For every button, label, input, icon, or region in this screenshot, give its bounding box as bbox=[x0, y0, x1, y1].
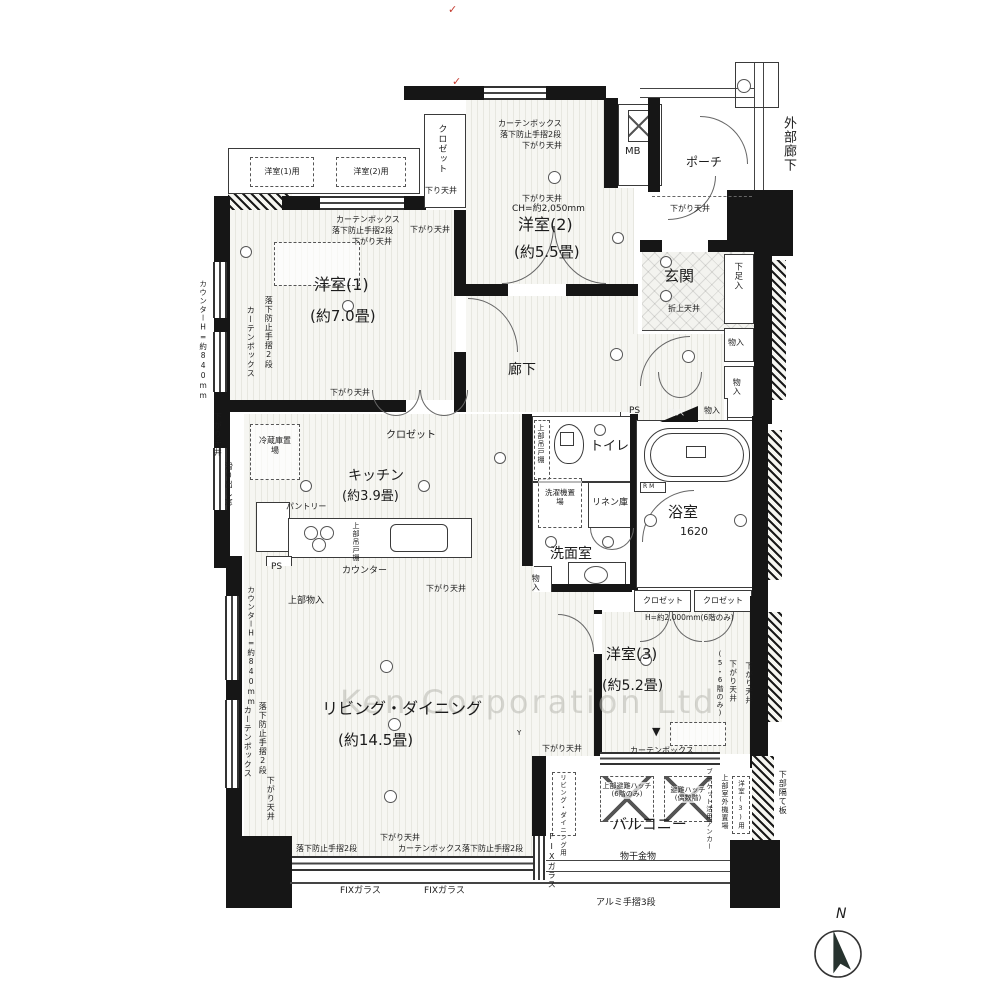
wall bbox=[454, 210, 466, 296]
storage-label: 物入 bbox=[531, 574, 540, 592]
washer-space-label: 洗濯機置場 bbox=[542, 488, 578, 506]
storage-label: 物入 bbox=[704, 406, 720, 415]
closet-top-label: クロゼット bbox=[436, 124, 446, 174]
outdoor-unit-note: 上部室外機置場 bbox=[721, 774, 729, 830]
door-opening bbox=[594, 614, 602, 654]
ceiling-note: 下がり天井 bbox=[744, 662, 753, 705]
ceiling-note: 下がり天井 bbox=[522, 194, 562, 203]
symbol-box-label: Y bbox=[517, 729, 521, 737]
wall-hatched bbox=[772, 260, 786, 400]
fix-glass-label: FIXガラス bbox=[340, 886, 381, 896]
wall bbox=[404, 86, 484, 100]
kitchen-label: キッチン bbox=[348, 468, 404, 484]
anchor-note: ブラケット活用アンカー bbox=[704, 768, 711, 851]
wall bbox=[226, 836, 292, 908]
curtain-box-note: カーテンボックス bbox=[336, 215, 400, 224]
wall bbox=[552, 584, 632, 592]
light-symbol bbox=[548, 171, 561, 184]
light-symbol bbox=[644, 514, 657, 527]
wall-hatched bbox=[768, 430, 782, 580]
toilet-tank bbox=[560, 432, 574, 446]
curtain-box-note: カーテンボックス bbox=[630, 746, 694, 755]
ceiling-note: 下がり天井 bbox=[670, 204, 710, 213]
window bbox=[213, 262, 227, 318]
ceiling-note: 下り天井 bbox=[425, 186, 457, 195]
rail-note: アルミ手摺3段 bbox=[596, 898, 656, 908]
light-symbol bbox=[384, 790, 397, 803]
wall bbox=[522, 414, 532, 590]
light-symbol bbox=[660, 290, 672, 302]
wall bbox=[546, 86, 606, 100]
linen-storage-label: リネン庫 bbox=[592, 498, 628, 508]
hatch-upper-label: 上部避難ハッチ(6階のみ) bbox=[602, 782, 652, 799]
light-symbol bbox=[610, 348, 623, 361]
ceiling-note: 下がり天井 bbox=[542, 744, 582, 753]
height-note: H=約2,000mm(6階のみ) bbox=[645, 614, 734, 623]
pipe-space-label: PS bbox=[629, 406, 640, 416]
floor-note: (5・6階のみ) bbox=[716, 650, 724, 718]
fix-window bbox=[533, 836, 545, 880]
ceiling-note: 下がり天井 bbox=[352, 237, 392, 246]
window bbox=[225, 700, 239, 788]
wall bbox=[404, 196, 426, 210]
light-symbol bbox=[240, 246, 252, 258]
bathroom-label: 浴室 bbox=[668, 504, 698, 521]
counter-label: カウンター bbox=[342, 566, 387, 576]
outer-edge-line bbox=[290, 882, 546, 884]
hall-closet-label: クロゼット bbox=[386, 430, 436, 442]
wall bbox=[282, 196, 322, 210]
window bbox=[484, 86, 546, 100]
ceiling-note: 下がり天井 bbox=[213, 412, 222, 457]
compass-north-label: N bbox=[836, 906, 846, 922]
fall-rail-note: 落下防止手摺2段 bbox=[332, 226, 393, 235]
yoshitsu1-size: (約7.0畳) bbox=[310, 308, 376, 325]
sink bbox=[390, 524, 448, 552]
wall bbox=[752, 416, 768, 596]
curtain-box-note: カーテンボックス bbox=[246, 306, 255, 378]
mixer-valve-label: R M bbox=[643, 484, 654, 491]
wall-hatched bbox=[768, 612, 782, 722]
yoshitsu2-label: 洋室(2) bbox=[518, 216, 573, 234]
red-check-mark: ✓ bbox=[448, 4, 457, 17]
light-symbol bbox=[380, 660, 393, 673]
wall bbox=[730, 840, 780, 908]
counter-height-note: カウンターH=約840mm bbox=[198, 280, 207, 401]
pipe-space-label: PS bbox=[271, 562, 282, 572]
yoshitsu1-label: 洋室(1) bbox=[314, 276, 369, 294]
fall-rail-note: 落下防止手摺2段 bbox=[500, 130, 561, 139]
red-check-mark: ✓ bbox=[452, 76, 461, 89]
furniture-outline bbox=[670, 722, 726, 746]
toilet-label: トイレ bbox=[590, 440, 629, 455]
pantry bbox=[256, 502, 290, 552]
exterior-corridor-label: 外部廊下 bbox=[780, 116, 795, 172]
living-label: リビング・ダイニング bbox=[322, 700, 482, 718]
window bbox=[213, 332, 227, 392]
fix-glass-label: FIXガラス bbox=[547, 832, 556, 889]
genkan-ceiling-note: 折上天井 bbox=[668, 304, 700, 313]
light-symbol bbox=[612, 232, 624, 244]
meter-box-label: MB bbox=[625, 146, 641, 158]
fall-rail-note: 落下防止手摺2段 bbox=[258, 702, 267, 775]
light-symbol bbox=[594, 424, 606, 436]
curtain-box-note: カーテンボックス bbox=[243, 706, 252, 778]
light-symbol bbox=[418, 480, 430, 492]
curtain-box-note: カーテンボックス bbox=[398, 844, 462, 853]
meter-box-shaft bbox=[628, 110, 650, 142]
stove-burner bbox=[312, 538, 326, 552]
corridor-label: 廊下 bbox=[508, 362, 536, 378]
door-opening bbox=[662, 240, 708, 252]
ac-space-yoshitsu1-label: 洋室(1)用 bbox=[252, 167, 312, 176]
yoshitsu3-label: 洋室(3) bbox=[606, 646, 657, 663]
upper-storage-note: 上部物入 bbox=[288, 596, 324, 606]
compass-icon bbox=[806, 922, 870, 986]
ac-space-living-label: リビング・ダイニング用 bbox=[558, 774, 565, 857]
washroom-label: 洗面室 bbox=[550, 546, 592, 562]
casement-window-note: 滑り出し窓 bbox=[224, 462, 233, 507]
light-symbol bbox=[494, 452, 506, 464]
fall-rail-note: 落下防止手摺2段 bbox=[296, 844, 357, 853]
light-symbol bbox=[734, 514, 747, 527]
porch-label: ポーチ bbox=[686, 156, 722, 170]
door-opening bbox=[508, 284, 566, 296]
door-arc bbox=[420, 390, 444, 416]
ceiling-note: 下がり天井 bbox=[380, 833, 420, 842]
wall bbox=[214, 196, 230, 248]
closet-label: クロゼット bbox=[638, 596, 688, 605]
light-symbol bbox=[682, 350, 695, 363]
window bbox=[320, 196, 404, 210]
storage-label: 物入 bbox=[728, 338, 744, 347]
wall-hatched bbox=[752, 756, 774, 840]
floor-plan: Ken Corporation Ltd ✓ ✓ 洋室(1)用 洋室(2)用 クロ… bbox=[0, 0, 1000, 1000]
window bbox=[225, 596, 239, 680]
ceiling-note: 下がり天井 bbox=[330, 388, 370, 397]
down-marker: ▼ bbox=[652, 726, 660, 739]
fall-rail-note: 落下防止手摺2段 bbox=[462, 844, 523, 853]
wall bbox=[532, 756, 546, 836]
wall bbox=[648, 98, 660, 192]
light-symbol bbox=[602, 536, 614, 548]
genkan-label: 玄関 bbox=[664, 268, 694, 285]
basin bbox=[584, 566, 608, 584]
yoshitsu2-size: (約5.5畳) bbox=[514, 244, 580, 261]
curtain-box-note: カーテンボックス bbox=[498, 119, 562, 128]
ceiling-note: 下がり天井 bbox=[266, 776, 275, 821]
fix-glass-label: FIXガラス bbox=[424, 886, 465, 896]
outer-edge-line bbox=[546, 882, 730, 884]
wall bbox=[604, 98, 618, 188]
corridor-symbol bbox=[737, 79, 751, 93]
upper-cabinet-note: 上部吊戸棚 bbox=[537, 424, 545, 464]
ac-space-yoshitsu2-label: 洋室(2)用 bbox=[340, 167, 402, 176]
door-arc bbox=[372, 390, 396, 416]
fix-window bbox=[410, 856, 540, 871]
partition-note: 下部隔て板 bbox=[778, 770, 787, 815]
fall-rail-note: 落下防止手摺2段 bbox=[264, 296, 273, 369]
kitchen-size: (約3.9畳) bbox=[342, 490, 399, 505]
ceiling-note: 下がり天井 bbox=[728, 660, 737, 703]
storage-label: 物入 bbox=[732, 378, 741, 396]
wall bbox=[754, 240, 772, 424]
yoshitsu2-ch-note: CH=約2,050mm bbox=[512, 204, 585, 214]
balcony-label: バルコニー bbox=[612, 816, 687, 833]
upper-cabinet-note: 上部吊戸棚 bbox=[352, 522, 360, 562]
fridge-space-label: 冷蔵庫置場 bbox=[256, 436, 294, 455]
entry-door-arc bbox=[668, 176, 716, 220]
light-symbol bbox=[300, 480, 312, 492]
fix-window bbox=[292, 856, 410, 871]
faucet-panel bbox=[686, 446, 706, 458]
pantry-label: パントリー bbox=[286, 502, 326, 511]
closet-label: クロゼット bbox=[698, 596, 748, 605]
ceiling-note: 下がり天井 bbox=[426, 584, 466, 593]
shoe-storage-label: 下足入 bbox=[732, 262, 742, 291]
counter-height-note: カウンターH=約840mm bbox=[246, 586, 255, 707]
ac-space-yoshitsu3-label: 洋室(3)用 bbox=[736, 780, 743, 830]
ceiling-note: 下がり天井 bbox=[410, 225, 450, 234]
storage-label: 物入 bbox=[668, 408, 684, 417]
yoshitsu3-size: (約5.2畳) bbox=[602, 678, 663, 694]
living-size: (約14.5畳) bbox=[338, 732, 413, 749]
door-arc bbox=[396, 390, 420, 416]
door-arc bbox=[444, 390, 468, 416]
light-symbol bbox=[388, 718, 401, 731]
laundry-hook-label: 物干金物 bbox=[620, 852, 656, 862]
ceiling-note: 下がり天井 bbox=[522, 141, 562, 150]
bathroom-size: 1620 bbox=[680, 526, 708, 539]
